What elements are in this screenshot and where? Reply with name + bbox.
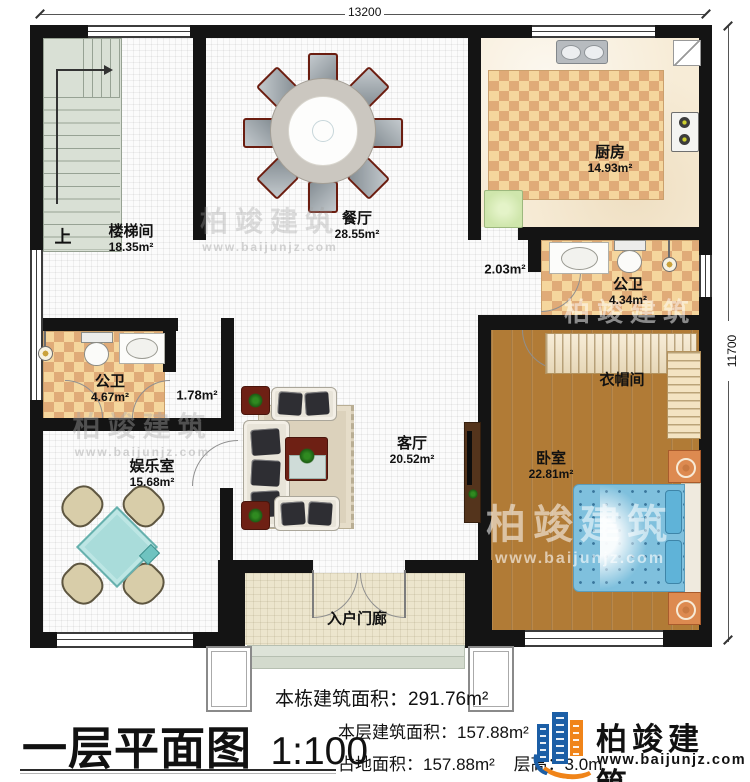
kitchen-sink [556,40,608,64]
sofa-cushion [307,501,333,526]
room-area: 28.55m² [335,228,380,241]
wall-bath-left-top [30,318,178,331]
room-name: 衣帽间 [599,373,644,390]
wall-passage-stub [221,318,234,431]
door-leaf-porch-right [404,570,406,618]
sofa-cushion [250,428,281,456]
room-label-dining: 餐厅 28.55m² [335,211,380,241]
window-right-bath [699,255,712,297]
dining-set [252,60,392,200]
kitchen-fridge [484,190,523,228]
room-area: 4.34m² [609,294,647,307]
stat-building-total: 本栋建筑面积：291.76m² [275,684,488,711]
dimension-right-value: 11700 [725,321,739,381]
window-top-stairwell [88,25,190,38]
wall-cloakroom-top [478,315,712,330]
label-stair-up: 上 [55,227,72,246]
room-label-bath-top: 公卫 4.34m² [609,277,647,307]
stair-direction-line [56,69,58,204]
room-name: 餐厅 [335,211,380,228]
kitchen-corner-cabinet [673,40,701,66]
room-name: 公卫 [609,277,647,294]
plant-icon [299,448,315,464]
sink-basin [561,45,581,60]
title-underline [20,769,336,771]
room-label-stairwell: 楼梯间 18.35m² [108,224,153,254]
stove-burner [679,134,690,145]
wall-living-bottom-b [405,560,465,573]
tv-cabinet [464,422,481,523]
bath-left-sink [126,338,158,359]
room-area: 14.93m² [588,162,633,175]
page-title: 一层平面图 1:100 [22,712,368,777]
bed-sheet-fold [600,484,648,590]
tv-icon [467,431,472,485]
room-area: 15.68m² [129,476,174,489]
wall-living-bottom-a [245,560,313,573]
window-top-kitchen [532,25,655,38]
window-bottom-bedroom [525,630,663,647]
room-name: 厨房 [588,145,633,162]
brand-url: www.baijunjz.com [597,752,746,768]
room-name: 卧室 [529,451,574,468]
stair-upper-flight [83,38,120,98]
kitchen-rug [488,70,664,200]
room-label-kitchen: 厨房 14.93m² [588,145,633,175]
room-name: 公卫 [91,374,129,391]
bath-top-toilet [612,240,646,273]
sink-basin [584,45,604,60]
room-label-living: 客厅 20.52m² [390,436,435,466]
stove-burner [679,117,690,128]
title-text: 一层平面图 [22,723,252,774]
kitchen-stove [671,112,699,152]
wall-kitchen-bottom [518,227,712,240]
room-label-entertainment: 娱乐室 15.68m² [129,459,174,489]
room-name: 娱乐室 [129,459,174,476]
bath-left-shower-head [38,346,53,361]
sofa-loveseat-top [271,387,337,421]
toilet-bowl [617,250,642,273]
label-corridor-area: 2.03m² [484,263,525,278]
bed-pillow [665,490,682,534]
room-name: 入户门廊 [327,612,387,629]
stair-direction-line-h [56,69,106,71]
dimension-top-value: 13200 [345,5,384,19]
dining-chair [308,181,338,213]
brand-logo-icon [536,708,592,776]
up-text: 上 [55,227,72,246]
window-left [30,250,43,400]
wall-stair-dining [193,25,206,240]
bed-pillow [665,540,682,584]
room-area: 18.35m² [108,241,153,254]
bath-left-sink-counter [119,333,165,364]
room-name: 楼梯间 [108,224,153,241]
room-label-porch: 入户门廊 [327,612,387,629]
window-bottom-entertainment [57,632,193,648]
plant-icon [468,489,478,499]
bath-left-toilet [79,332,113,366]
porch-steps [247,656,465,669]
door-leaf-porch-left [312,570,314,618]
plant-icon [248,393,263,408]
porch-column-base [206,646,252,712]
room-area: 20.52m² [390,453,435,466]
room-label-cloakroom: 衣帽间 [599,373,644,390]
porch-pillar-left [218,560,245,648]
stat-floor-area: 本层建筑面积：157.88m² [338,718,529,743]
nightstand [668,592,701,625]
wall-entertainment-right [220,488,233,560]
dining-table-center [312,120,334,142]
nightstand [668,450,701,483]
area-value: 1.78m² [176,389,217,404]
room-label-bath-left: 公卫 4.67m² [91,374,129,404]
room-name: 客厅 [390,436,435,453]
brand-logo: 柏竣建筑 www.baijunjz.com [536,708,736,778]
stair-arrow-icon [104,65,113,75]
bath-top-shower-head [662,257,677,272]
brand-name: 柏竣建筑 [596,714,736,782]
toilet-bowl [84,342,109,366]
side-table [241,501,270,530]
room-label-bedroom: 卧室 22.81m² [529,451,574,481]
sofa-cushion [277,391,303,416]
porch-pillar-right [465,560,492,648]
label-passage-area: 1.78m² [176,389,217,404]
bath-top-sink-counter [549,242,609,274]
wall-bath-left-bottom [30,418,234,431]
title-underline-thin [20,773,336,774]
bath-top-sink [561,247,598,270]
stat-land-area: 占地面积：157.88m² [338,755,495,774]
floor-plan-canvas: 柏竣建筑 www.baijunjz.com 柏竣建筑 www.baijunjz.… [0,0,750,782]
cloakroom-rack-right [667,351,701,439]
sofa-cushion [280,501,306,526]
room-area: 22.81m² [529,468,574,481]
side-table [241,386,270,415]
sofa-cushion [304,391,330,416]
area-value: 2.03m² [484,263,525,278]
room-area: 4.67m² [91,391,129,404]
sofa-loveseat-bottom [274,496,340,531]
plant-icon [248,508,263,523]
sofa-cushion [250,459,280,486]
coffee-table [285,437,328,481]
wall-bath-top-stub [528,240,541,272]
wall-dining-kitchen [468,25,481,240]
